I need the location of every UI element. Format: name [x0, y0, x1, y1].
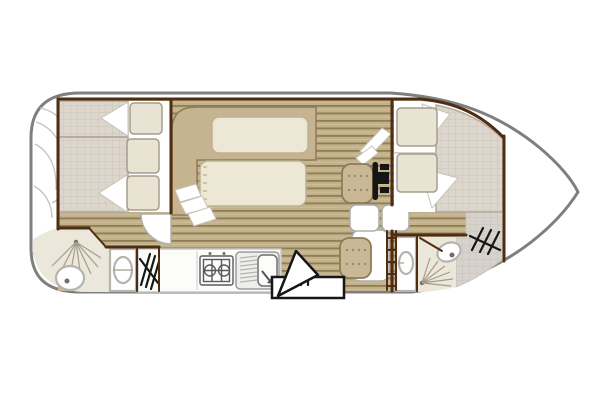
cabin-door-leaf — [350, 205, 379, 231]
boat-floorplan: boat floor plan stern deck bow deck step… — [0, 0, 600, 400]
aft-cabin: aft cabin — [59, 101, 171, 212]
galley: galley — [159, 249, 281, 292]
dinette-table — [212, 117, 308, 153]
boat-floorplan-canvas: boat floor plan stern deck bow deck step… — [0, 0, 600, 400]
bow-bathroom: bow bathroom — [396, 237, 464, 292]
pillow-icon — [397, 108, 437, 146]
copilot-seat — [340, 238, 371, 278]
dinette-berth — [200, 161, 306, 206]
toilet-icon — [56, 266, 84, 290]
pillow-icon — [130, 103, 162, 134]
pillow-icon — [127, 139, 159, 173]
pillow-icon — [127, 176, 159, 210]
toilet-drain-dot — [450, 253, 455, 258]
toilet-drain-dot — [65, 279, 70, 284]
pillow-icon — [397, 154, 437, 192]
helm-seat — [342, 164, 373, 203]
